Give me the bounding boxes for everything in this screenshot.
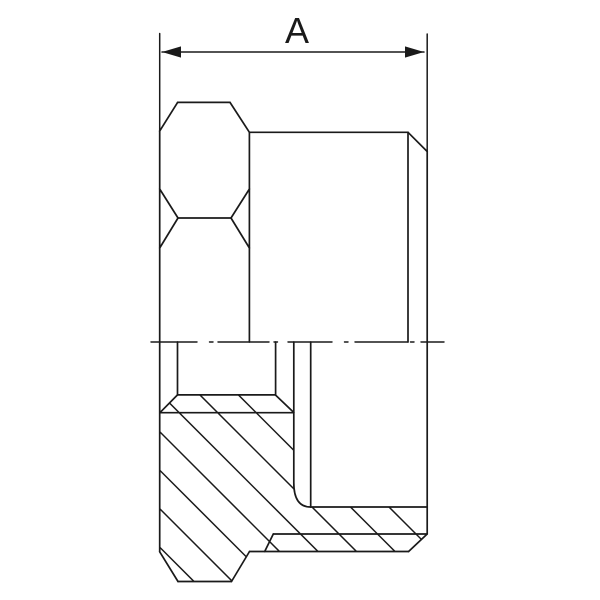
- svg-text:A: A: [285, 10, 309, 51]
